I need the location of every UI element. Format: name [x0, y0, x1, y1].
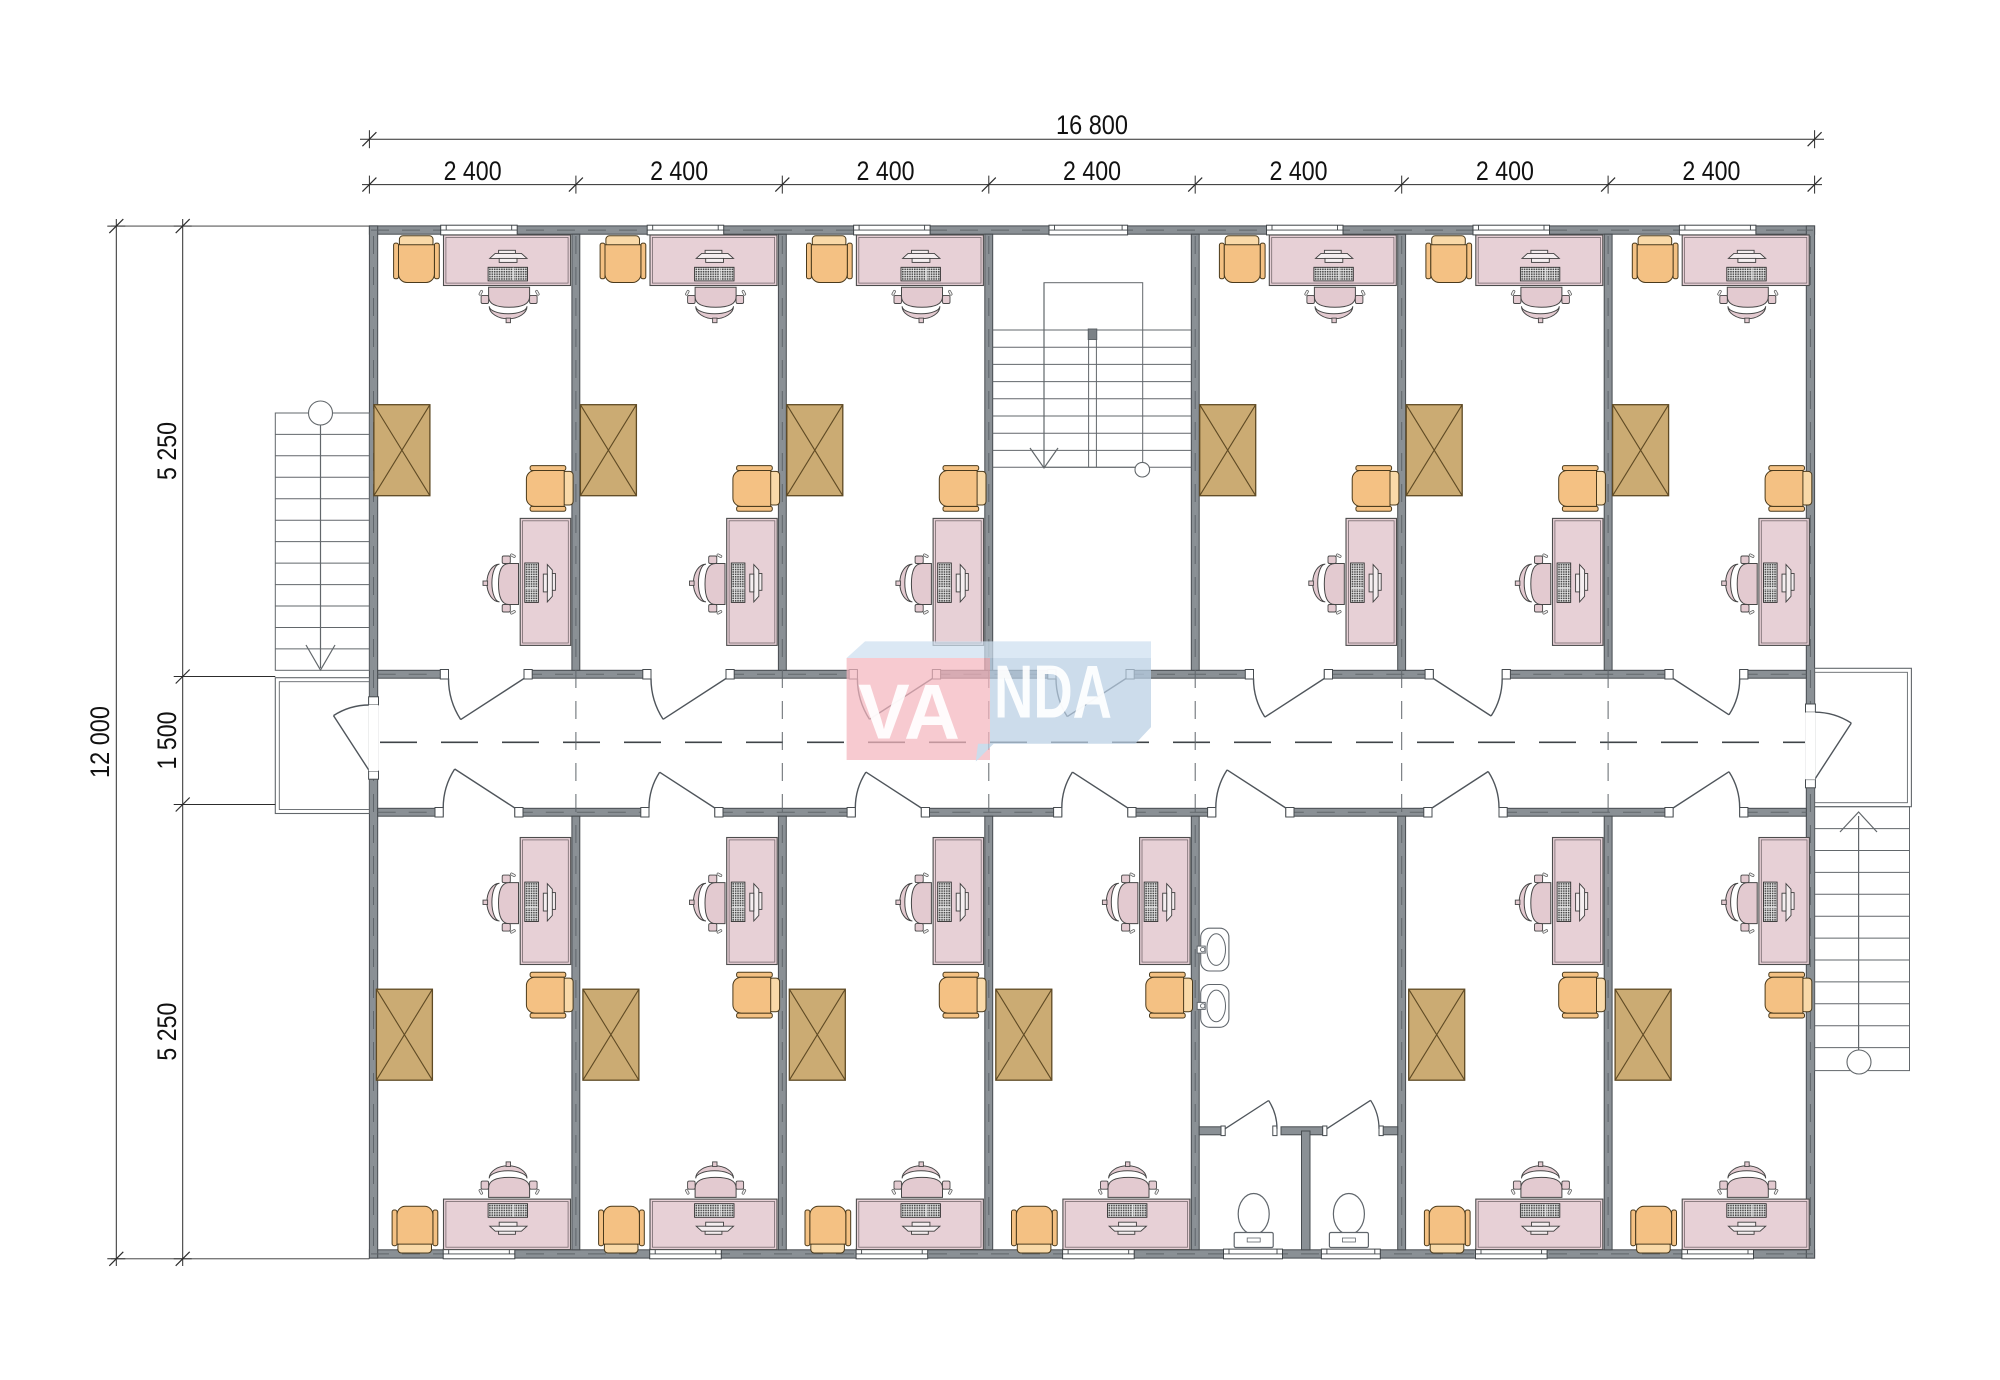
svg-text:2 400: 2 400: [444, 156, 502, 186]
svg-text:2 400: 2 400: [1682, 156, 1740, 186]
svg-text:5 250: 5 250: [152, 422, 182, 480]
svg-text:VA: VA: [858, 668, 960, 756]
svg-text:NDA: NDA: [994, 650, 1112, 734]
svg-text:2 400: 2 400: [650, 156, 708, 186]
svg-text:16 800: 16 800: [1056, 110, 1128, 140]
svg-text:2 400: 2 400: [1063, 156, 1121, 186]
svg-text:2 400: 2 400: [1270, 156, 1328, 186]
svg-text:1 500: 1 500: [152, 712, 182, 770]
svg-text:5 250: 5 250: [152, 1003, 182, 1061]
svg-text:2 400: 2 400: [857, 156, 915, 186]
svg-text:12 000: 12 000: [85, 706, 115, 778]
svg-text:2 400: 2 400: [1476, 156, 1534, 186]
